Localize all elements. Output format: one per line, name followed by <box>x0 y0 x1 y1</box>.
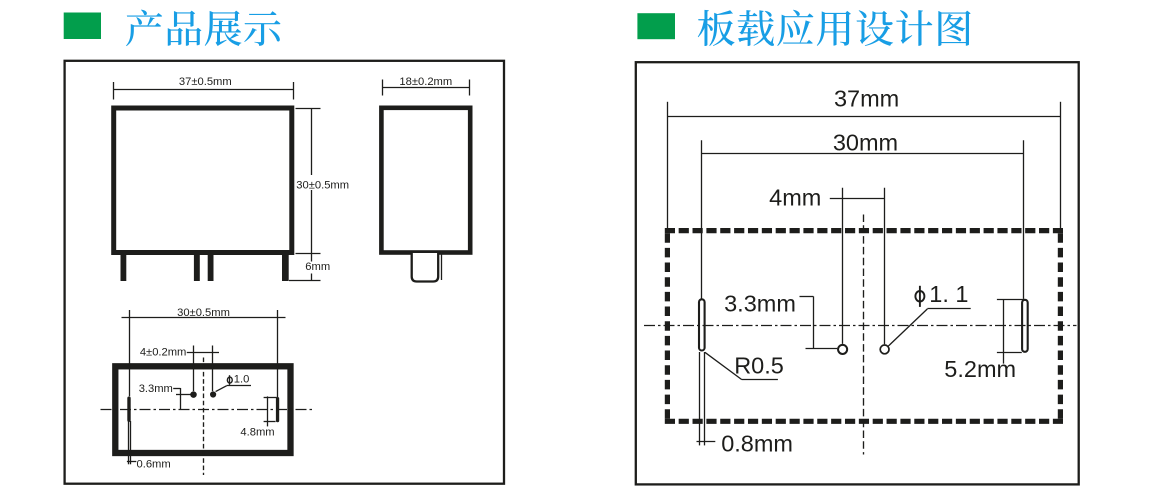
svg-text:30mm: 30mm <box>833 129 898 155</box>
svg-text:1. 1: 1. 1 <box>929 281 968 307</box>
svg-text:4.8mm: 4.8mm <box>240 427 274 439</box>
svg-text:5.2mm: 5.2mm <box>944 356 1016 382</box>
svg-text:4±0.2mm: 4±0.2mm <box>140 346 187 358</box>
svg-text:3.3mm: 3.3mm <box>724 291 796 317</box>
svg-text:37mm: 37mm <box>834 85 899 111</box>
svg-text:3.3mm: 3.3mm <box>139 383 173 395</box>
svg-text:4mm: 4mm <box>769 185 821 211</box>
svg-text:R0.5: R0.5 <box>734 352 784 378</box>
svg-text:37±0.5mm: 37±0.5mm <box>179 76 232 88</box>
svg-text:0.8mm: 0.8mm <box>721 431 793 457</box>
svg-text:1.0: 1.0 <box>234 374 250 386</box>
svg-text:30±0.5mm: 30±0.5mm <box>296 179 349 191</box>
svg-text:30±0.5mm: 30±0.5mm <box>177 307 230 319</box>
svg-text:6mm: 6mm <box>305 261 330 273</box>
svg-text:0.6mm: 0.6mm <box>137 458 171 470</box>
svg-text:18±0.2mm: 18±0.2mm <box>399 76 452 88</box>
